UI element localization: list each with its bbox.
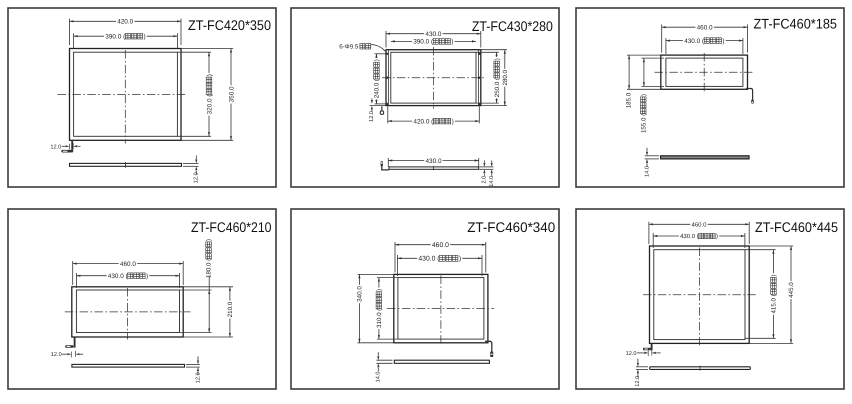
svg-text:420.0: 420.0 (117, 19, 133, 26)
svg-text:210.0: 210.0 (227, 301, 234, 317)
svg-text:12.0: 12.0 (195, 372, 201, 383)
svg-text:460.0: 460.0 (120, 261, 136, 268)
svg-text:430.0 (: 430.0 ( (684, 38, 705, 45)
svg-text:): ) (451, 39, 453, 46)
svg-text:): ) (146, 273, 148, 280)
svg-text:430.0: 430.0 (426, 158, 442, 165)
svg-text:185.0: 185.0 (626, 92, 633, 108)
svg-text:): ) (771, 274, 778, 276)
svg-text:2.0: 2.0 (482, 176, 488, 184)
svg-text:): ) (459, 256, 461, 263)
svg-text:155.0 (: 155.0 ( (640, 113, 647, 133)
svg-text:460.0: 460.0 (692, 222, 708, 229)
svg-text:): ) (494, 58, 501, 60)
svg-text:): ) (640, 94, 647, 96)
svg-text:ZT-FC460*210: ZT-FC460*210 (191, 219, 272, 235)
svg-text:350.0: 350.0 (228, 86, 235, 102)
svg-text:340.0: 340.0 (357, 286, 364, 302)
svg-text:280.0: 280.0 (502, 69, 509, 85)
svg-text:14.0: 14.0 (489, 176, 495, 187)
svg-text:12.0: 12.0 (626, 351, 637, 357)
svg-text:14.0: 14.0 (644, 166, 650, 177)
svg-text:): ) (722, 38, 724, 45)
svg-text:6-Φ9.5: 6-Φ9.5 (339, 43, 360, 50)
svg-text:430.0 (: 430.0 ( (680, 233, 699, 240)
svg-text:240.0 (: 240.0 ( (374, 78, 381, 98)
svg-text:390.0 (: 390.0 ( (413, 39, 434, 46)
svg-text:445.0: 445.0 (788, 282, 795, 298)
svg-text:ZT-FC460*185: ZT-FC460*185 (754, 16, 838, 32)
svg-text:): ) (452, 118, 454, 125)
svg-text:): ) (716, 233, 718, 240)
svg-text:460.0: 460.0 (697, 25, 713, 32)
svg-text:): ) (376, 289, 383, 291)
svg-text:12.0: 12.0 (635, 376, 641, 387)
svg-text:): ) (144, 34, 146, 41)
svg-text:12.0: 12.0 (50, 144, 61, 150)
svg-text:420.0 (: 420.0 ( (413, 118, 434, 125)
svg-text:430.0 (: 430.0 ( (108, 273, 129, 280)
svg-text:250.0 (: 250.0 ( (494, 77, 501, 97)
svg-text:12.0: 12.0 (369, 111, 375, 122)
svg-text:): ) (374, 59, 381, 61)
svg-text:ZT-FC430*280: ZT-FC430*280 (472, 18, 553, 34)
svg-text:): ) (206, 74, 213, 76)
svg-text:415.0 (: 415.0 ( (771, 293, 778, 313)
svg-text:310.0 (: 310.0 ( (376, 308, 383, 328)
svg-text:12.0: 12.0 (51, 352, 62, 358)
svg-text:ZT-FC460*445: ZT-FC460*445 (755, 219, 838, 235)
svg-text:320.0 (: 320.0 ( (206, 94, 213, 115)
svg-text:430.0: 430.0 (425, 31, 441, 38)
svg-text:14.0: 14.0 (376, 372, 382, 383)
svg-text:ZT-FC420*350: ZT-FC420*350 (188, 17, 271, 33)
svg-text:390.0 (: 390.0 ( (105, 34, 126, 41)
svg-text:): ) (206, 239, 213, 241)
svg-text:430.0 (: 430.0 ( (418, 256, 440, 263)
svg-text:ZT-FC460*340: ZT-FC460*340 (467, 219, 555, 235)
svg-text:460.0: 460.0 (432, 242, 449, 249)
svg-text:12.0: 12.0 (194, 172, 200, 183)
svg-text:180.0 (: 180.0 ( (206, 258, 213, 278)
